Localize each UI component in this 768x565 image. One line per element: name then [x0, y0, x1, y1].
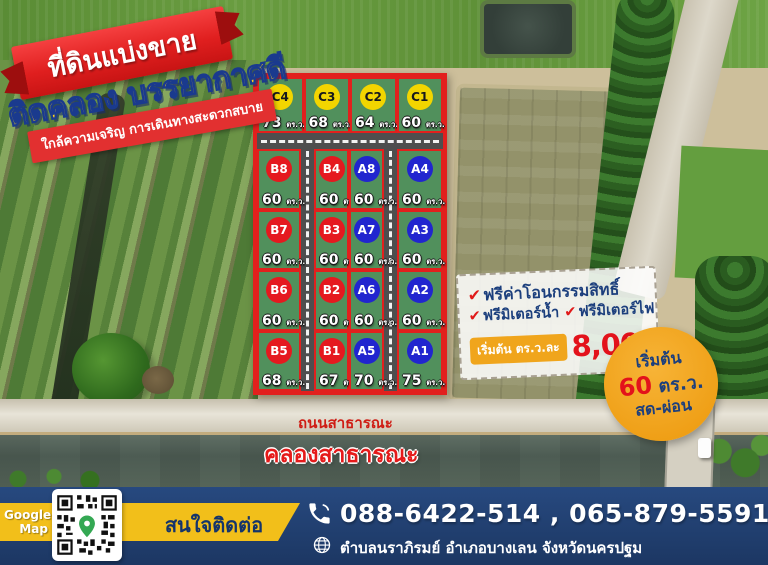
area-unit: ตร.ว. — [379, 120, 398, 129]
plot-area: 60 — [319, 252, 338, 268]
plot-area: 60 — [262, 252, 281, 268]
plot-id-badge: A3 — [407, 217, 433, 243]
check-icon: ✔ — [564, 304, 577, 321]
plot-area: 70 — [354, 373, 373, 389]
address-text: ตำบลนราภิรมย์ อำเภอบางเลน จังหวัดนครปฐม — [340, 536, 642, 560]
plot-cell-a8: A8 60 ตร.ว. — [349, 149, 384, 210]
price-prefix-badge: เริ่มต้น ตร.ว.ละ — [470, 333, 568, 364]
internal-road-vertical — [384, 149, 397, 391]
plot-area: 60 — [354, 192, 373, 208]
area-unit: ตร.ว. — [286, 120, 305, 129]
plot-id-badge: B4 — [319, 156, 345, 182]
plot-cell-a4: A4 60 ตร.ว. — [397, 149, 443, 210]
plot-area: 60 — [354, 252, 373, 268]
plot-id-badge: C2 — [360, 84, 386, 110]
plot-cell-a1: A1 75 ตร.ว. — [397, 331, 443, 392]
qr-code — [52, 489, 122, 561]
plot-cell-b3: B3 60 ตร.ว. — [314, 210, 349, 271]
plot-area: 60 — [262, 313, 281, 329]
contact-cta-label: สนใจติดต่อ — [138, 509, 290, 541]
plot-id-badge: B1 — [319, 338, 345, 364]
phone-numbers: 088-6422-514 , 065-879-5591 — [340, 499, 768, 528]
check-icon: ✔ — [468, 309, 481, 326]
canal-label: คลองสาธารณะ — [264, 437, 418, 473]
plot-cell-c1: C1 60 ตร.ว. — [397, 77, 444, 133]
small-pond — [142, 366, 174, 394]
area-unit: ตร.ว. — [426, 120, 445, 129]
internal-road-vertical — [301, 149, 314, 391]
plot-area: 60 — [319, 313, 338, 329]
check-icon: ✔ — [467, 285, 481, 305]
plot-id-badge: A1 — [407, 338, 433, 364]
area-unit: ตร.ว. — [286, 197, 305, 206]
plot-id-badge: B7 — [266, 217, 292, 243]
area-unit: ตร.ว. — [333, 120, 352, 129]
area-unit: ตร.ว. — [378, 318, 397, 327]
plot-cell-b2: B2 60 ตร.ว. — [314, 270, 349, 331]
plot-area: 75 — [402, 373, 421, 389]
tree — [72, 333, 150, 405]
plot-cell-c3: C3 68 ตร.ว. — [304, 77, 351, 133]
plot-id-badge: A4 — [407, 156, 433, 182]
plot-column-middle: B4 60 ตร.ว. A8 60 ตร.ว. B3 60 ตร.ว. A7 — [314, 149, 384, 391]
plot-id-badge: B6 — [266, 277, 292, 303]
plot-cell-b6: B6 60 ตร.ว. — [257, 270, 301, 331]
plot-column-a-outer: A4 60 ตร.ว. A3 60 ตร.ว. A2 60 ตร.ว. A1 7… — [397, 149, 443, 391]
area-unit: ตร.ว. — [426, 257, 445, 266]
plot-cell-b4: B4 60 ตร.ว. — [314, 149, 349, 210]
area-unit: ตร.ว. — [426, 318, 445, 327]
area-unit: ตร.ว. — [286, 318, 305, 327]
plot-cell-a6: A6 60 ตร.ว. — [349, 270, 384, 331]
plot-id-badge: A8 — [354, 156, 380, 182]
plot-area: 60 — [354, 313, 373, 329]
plot-area: 60 — [262, 192, 281, 208]
pond — [480, 0, 576, 58]
google-map-label: Google Map — [4, 508, 48, 537]
plot-area: 60 — [402, 192, 421, 208]
area-unit: ตร.ว. — [378, 257, 397, 266]
plot-id-badge: A7 — [354, 217, 380, 243]
internal-road-horizontal — [257, 133, 443, 149]
land-sale-flyer: C4 73 ตร.ว. C3 68 ตร.ว. C2 64 ตร.ว. C1 6… — [0, 0, 768, 565]
plot-grid: C4 73 ตร.ว. C3 68 ตร.ว. C2 64 ตร.ว. C1 6… — [253, 73, 447, 395]
plot-area: 60 — [402, 252, 421, 268]
plot-id-badge: A2 — [407, 277, 433, 303]
plot-area: 67 — [319, 373, 338, 389]
plot-id-badge: B8 — [266, 156, 292, 182]
plot-area: 68 — [262, 373, 281, 389]
start-badge-size: 60 ตร.ว. — [617, 365, 704, 403]
area-unit: ตร.ว. — [426, 378, 445, 387]
plot-area: 60 — [402, 313, 421, 329]
phone-icon — [306, 500, 333, 527]
area-unit: ตร.ว. — [378, 197, 397, 206]
plot-cell-a7: A7 60 ตร.ว. — [349, 210, 384, 271]
plot-cell-c2: C2 64 ตร.ว. — [350, 77, 397, 133]
plot-id-badge: A5 — [354, 338, 380, 364]
road-label: ถนนสาธารณะ — [298, 411, 393, 435]
contact-bar: Google Map — [0, 487, 768, 565]
qr-code-icon — [55, 492, 119, 558]
area-unit: ตร.ว. — [286, 257, 305, 266]
plot-area: 60 — [402, 115, 421, 131]
plot-cell-b5: B5 68 ตร.ว. — [257, 331, 301, 392]
plot-cell-b8: B8 60 ตร.ว. — [257, 149, 301, 210]
plot-cell-a5: A5 70 ตร.ว. — [349, 331, 384, 392]
plot-id-badge: B2 — [319, 277, 345, 303]
plot-id-badge: B5 — [266, 338, 292, 364]
globe-icon — [313, 536, 331, 554]
plot-cell-a3: A3 60 ตร.ว. — [397, 210, 443, 271]
plot-id-badge: C3 — [314, 84, 340, 110]
plot-id-badge: C1 — [407, 84, 433, 110]
plot-id-badge: B3 — [319, 217, 345, 243]
plot-area: 68 — [309, 115, 328, 131]
plot-column-b-outer: B8 60 ตร.ว. B7 60 ตร.ว. B6 60 ตร.ว. B5 6… — [257, 149, 301, 391]
plot-cell-b7: B7 60 ตร.ว. — [257, 210, 301, 271]
area-unit: ตร.ว. — [286, 378, 305, 387]
area-unit: ตร.ว. — [426, 197, 445, 206]
plot-cell-a2: A2 60 ตร.ว. — [397, 270, 443, 331]
car-on-bridge — [698, 438, 711, 458]
plot-area: 60 — [319, 192, 338, 208]
plot-cell-b1: B1 67 ตร.ว. — [314, 331, 349, 392]
area-unit: ตร.ว. — [378, 378, 397, 387]
plot-area: 64 — [355, 115, 374, 131]
plot-id-badge: A6 — [354, 277, 380, 303]
